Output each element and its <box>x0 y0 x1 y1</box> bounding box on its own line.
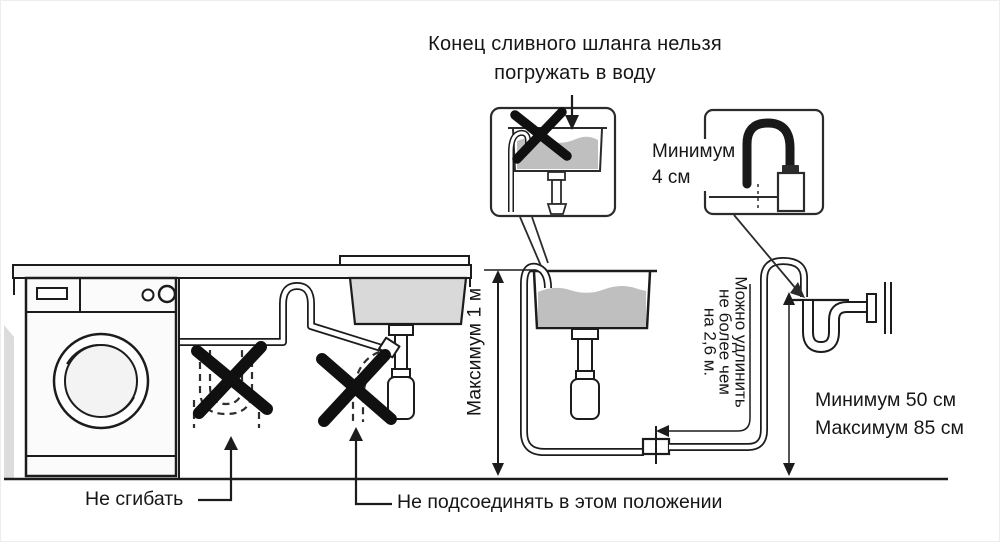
wall-flange <box>867 294 876 322</box>
label-max-85cm: Максимум 85 см <box>815 414 964 442</box>
kitchen-sink <box>527 271 657 419</box>
label-standpipe-height: Минимум 50 см Максимум 85 см <box>815 386 964 442</box>
knob-large <box>159 286 175 302</box>
diagram-title: Конец сливного шланга нельзя погружать в… <box>373 30 777 88</box>
sink-rim <box>340 256 469 265</box>
label-max-1m: Максимум 1 м <box>464 288 487 416</box>
arrow-icon <box>492 463 504 476</box>
arrow-icon <box>783 463 795 476</box>
x-icon-connection <box>322 355 391 421</box>
leader-no-bend-arrow <box>198 436 238 500</box>
wall-shadow <box>4 325 14 479</box>
title-line2: погружать в воду <box>373 59 777 88</box>
arrow-icon <box>349 427 363 441</box>
installation-diagram: Конец сливного шланга нельзя погружать в… <box>0 0 1000 542</box>
title-line1: Конец сливного шланга нельзя <box>373 30 777 59</box>
knob-small <box>143 290 154 301</box>
arrow-icon <box>224 436 238 450</box>
bottle-trap <box>571 379 599 419</box>
label-min-4cm: Минимум 4 см <box>652 139 741 191</box>
washing-machine <box>26 278 179 479</box>
label-min-50cm: Минимум 50 см <box>815 386 964 414</box>
measure-standpipe-arrow <box>783 292 795 476</box>
inset-leader-lines <box>520 217 548 266</box>
arrow-icon <box>656 425 669 437</box>
leader-no-connect-arrow <box>349 427 392 504</box>
arrow-icon <box>492 270 504 283</box>
x-icon-bend <box>197 347 267 413</box>
inset-sink-warning <box>491 108 615 216</box>
label-extension-2-6m: Можно удлинить не более чем на 2,6 м. <box>702 276 749 407</box>
label-no-connect: Не подсоединять в этом положении <box>397 491 722 514</box>
label-no-bend: Не сгибать <box>85 488 183 511</box>
detergent-drawer <box>37 288 67 299</box>
